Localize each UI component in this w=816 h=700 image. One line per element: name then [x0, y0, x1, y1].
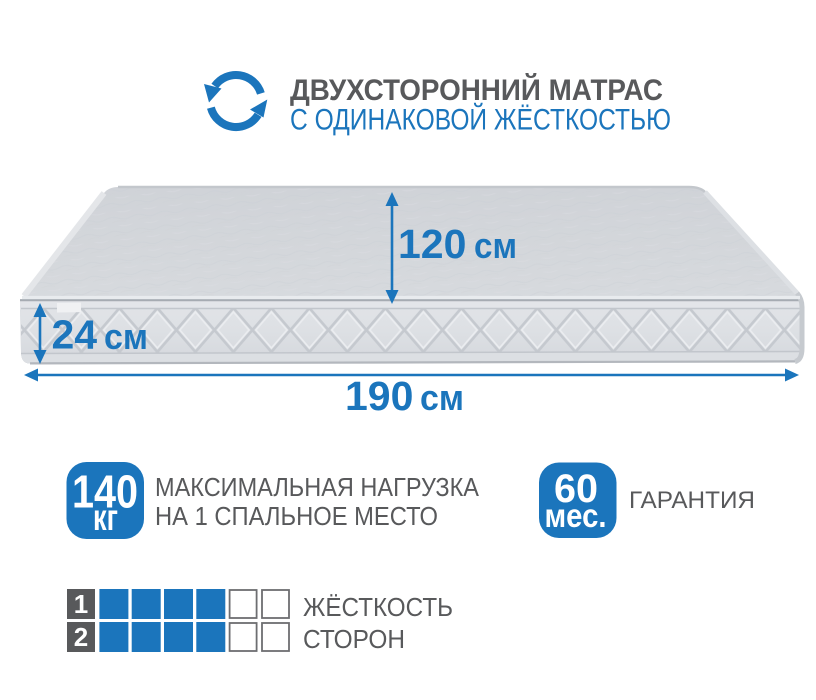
svg-text:1: 1 [74, 589, 88, 619]
svg-text:СТОРОН: СТОРОН [303, 624, 405, 654]
svg-text:2: 2 [74, 622, 88, 652]
svg-text:см: см [474, 225, 517, 266]
svg-text:мес.: мес. [545, 497, 607, 534]
svg-text:ДВУХСТОРОННИЙ МАТРАС: ДВУХСТОРОННИЙ МАТРАС [290, 73, 663, 107]
svg-text:120: 120 [398, 221, 466, 267]
svg-text:190: 190 [345, 373, 413, 419]
svg-text:кг: кг [93, 497, 118, 538]
svg-text:С ОДИНАКОВОЙ ЖЁСТКОСТЬЮ: С ОДИНАКОВОЙ ЖЁСТКОСТЬЮ [290, 103, 671, 137]
svg-text:24: 24 [52, 312, 98, 358]
svg-text:см: см [104, 316, 148, 357]
svg-text:НА 1 СПАЛЬНОЕ МЕСТО: НА 1 СПАЛЬНОЕ МЕСТО [155, 501, 438, 531]
svg-text:ЖЁСТКОСТЬ: ЖЁСТКОСТЬ [303, 592, 453, 622]
svg-text:см: см [420, 377, 464, 418]
svg-text:ГАРАНТИЯ: ГАРАНТИЯ [629, 487, 755, 514]
svg-text:МАКСИМАЛЬНАЯ НАГРУЗКА: МАКСИМАЛЬНАЯ НАГРУЗКА [155, 472, 480, 502]
